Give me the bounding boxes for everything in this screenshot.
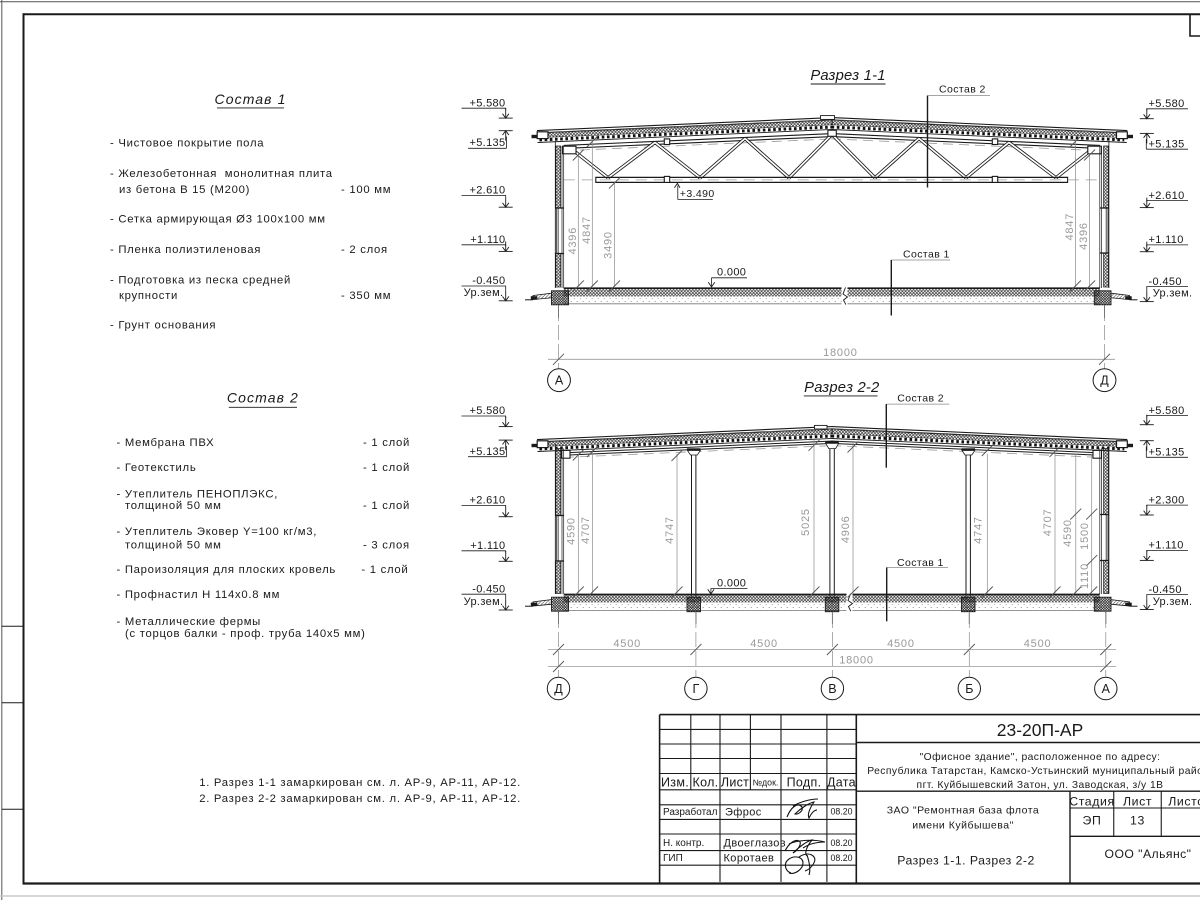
svg-text:- 350 мм: - 350 мм	[341, 290, 391, 302]
svg-text:- Пароизоляция для плоских кро: - Пароизоляция для плоских кровель	[117, 564, 337, 576]
svg-text:- Металлические фермы: - Металлические фермы	[117, 616, 262, 628]
svg-text:Дата: Дата	[827, 775, 856, 789]
svg-text:+2.610: +2.610	[469, 495, 505, 507]
svg-text:4747: 4747	[973, 516, 985, 544]
svg-text:- Пленка полиэтиленовая: - Пленка полиэтиленовая	[110, 244, 261, 256]
svg-text:- Профнастил Н 114х0.8 мм: - Профнастил Н 114х0.8 мм	[117, 589, 281, 601]
svg-text:+2.300: +2.300	[1149, 494, 1185, 506]
svg-text:ЗАО "Ремонтная база флота: ЗАО "Ремонтная база флота	[887, 805, 1040, 817]
svg-text:Кол.: Кол.	[693, 775, 719, 789]
svg-text:Состав 2: Состав 2	[897, 393, 944, 405]
svg-text:+3.490: +3.490	[680, 188, 715, 200]
svg-text:- 3 слоя: - 3 слоя	[363, 540, 410, 552]
svg-text:Ур.зем.: Ур.зем.	[1153, 596, 1193, 608]
svg-text:08.20: 08.20	[830, 853, 852, 863]
svg-text:Листов: Листов	[1168, 794, 1200, 808]
svg-text:-0.450: -0.450	[1149, 276, 1182, 288]
svg-text:Д: Д	[1100, 374, 1109, 388]
svg-text:крупности: крупности	[119, 290, 178, 302]
svg-text:- Чистовое покрытие пола: - Чистовое покрытие пола	[110, 138, 264, 150]
svg-text:3490: 3490	[603, 231, 615, 259]
svg-text:- 1 слой: - 1 слой	[363, 500, 410, 512]
svg-text:Стадия: Стадия	[1069, 794, 1115, 808]
svg-text:4707: 4707	[1042, 509, 1054, 537]
svg-text:из бетона В 15 (М200): из бетона В 15 (М200)	[119, 184, 250, 196]
svg-text:4500: 4500	[750, 638, 778, 650]
svg-text:Г: Г	[693, 682, 700, 696]
svg-text:- 1 слой: - 1 слой	[361, 564, 408, 576]
svg-text:- Утеплитель ПЕНОПЛЭКС,: - Утеплитель ПЕНОПЛЭКС,	[117, 489, 279, 501]
svg-text:Лист: Лист	[721, 775, 749, 789]
svg-text:+5.580: +5.580	[469, 405, 505, 417]
svg-text:+2.610: +2.610	[469, 185, 505, 197]
svg-text:-0.450: -0.450	[472, 275, 505, 287]
svg-text:Подп.: Подп.	[787, 775, 822, 789]
svg-text:- 2 слоя: - 2 слоя	[341, 244, 388, 256]
svg-text:+5.135: +5.135	[1149, 447, 1185, 459]
svg-text:пгт. Куйбышевский Затон, ул. З: пгт. Куйбышевский Затон, ул. Заводская, …	[917, 779, 1164, 791]
svg-text:Коротаев: Коротаев	[724, 853, 775, 865]
svg-text:18000: 18000	[839, 655, 874, 667]
svg-text:0.000: 0.000	[717, 577, 746, 589]
svg-text:Состав 1: Состав 1	[903, 248, 950, 260]
svg-text:(с торцов балки - проф. труба: (с торцов балки - проф. труба 140х5 мм)	[125, 628, 366, 640]
svg-text:толщиной 50 мм: толщиной 50 мм	[125, 540, 222, 552]
svg-text:толщиной 50 мм: толщиной 50 мм	[125, 500, 222, 512]
svg-text:Н. контр.: Н. контр.	[663, 838, 704, 849]
svg-text:4590: 4590	[1062, 519, 1074, 547]
svg-text:Разрез 2-2: Разрез 2-2	[804, 380, 880, 396]
svg-text:ЭП: ЭП	[1083, 814, 1102, 828]
svg-text:Ур.зем.: Ур.зем.	[1153, 288, 1193, 300]
svg-text:+5.580: +5.580	[1149, 98, 1185, 110]
svg-text:4707: 4707	[580, 516, 592, 544]
svg-text:Состав 1: Состав 1	[215, 91, 287, 107]
svg-text:ГИП: ГИП	[663, 853, 683, 864]
svg-text:1. Разрез 1-1 замаркирован см.: 1. Разрез 1-1 замаркирован см. л. АР-9, …	[199, 777, 521, 789]
svg-text:А: А	[1102, 682, 1111, 696]
svg-text:В: В	[828, 682, 836, 696]
svg-text:Состав 2: Состав 2	[227, 389, 299, 405]
svg-text:4396: 4396	[1078, 222, 1090, 250]
svg-text:5025: 5025	[800, 508, 812, 536]
svg-text:"Офисное здание", расположенно: "Офисное здание", расположенное по адрес…	[920, 751, 1161, 763]
svg-text:23-20П-АР: 23-20П-АР	[997, 720, 1084, 740]
svg-text:4500: 4500	[887, 638, 915, 650]
svg-text:- Подготовка из песка средней: - Подготовка из песка средней	[110, 275, 291, 287]
svg-text:- Утеплитель Эковер Y=100 кг/м: - Утеплитель Эковер Y=100 кг/м3,	[117, 526, 318, 538]
svg-text:- 1 слой: - 1 слой	[363, 437, 410, 449]
svg-text:- 1 слой: - 1 слой	[363, 462, 410, 474]
svg-text:+1.110: +1.110	[1149, 540, 1184, 552]
svg-text:4396: 4396	[567, 227, 579, 255]
svg-text:+1.110: +1.110	[1149, 234, 1184, 246]
svg-text:имени Куйбышева": имени Куйбышева"	[912, 820, 1014, 832]
svg-text:4500: 4500	[613, 638, 641, 650]
svg-text:-0.450: -0.450	[1149, 584, 1182, 596]
svg-text:18000: 18000	[823, 347, 858, 359]
svg-text:1110: 1110	[1079, 563, 1091, 589]
svg-text:Разработал: Разработал	[663, 806, 718, 818]
svg-text:+5.580: +5.580	[469, 97, 505, 109]
svg-text:Изм.: Изм.	[661, 775, 689, 789]
svg-text:Б: Б	[965, 682, 973, 696]
svg-text:08.20: 08.20	[830, 838, 852, 848]
svg-text:1500: 1500	[1079, 522, 1091, 550]
svg-text:4847: 4847	[581, 216, 593, 244]
svg-text:4500: 4500	[1024, 638, 1052, 650]
svg-text:+5.135: +5.135	[469, 446, 505, 458]
svg-text:4747: 4747	[664, 516, 676, 544]
svg-text:Республика Татарстан, Камско-У: Республика Татарстан, Камско-Устьинский …	[867, 765, 1200, 777]
svg-text:+5.135: +5.135	[469, 137, 505, 149]
svg-text:ООО "Альянс": ООО "Альянс"	[1105, 847, 1192, 861]
svg-text:Эфрос: Эфрос	[725, 806, 762, 818]
svg-text:- 100 мм: - 100 мм	[341, 184, 391, 196]
svg-text:Состав 2: Состав 2	[939, 83, 986, 95]
svg-text:+1.110: +1.110	[470, 234, 505, 246]
svg-text:- Железобетонная монолитная п: - Железобетонная монолитная плита	[110, 168, 333, 180]
svg-text:Разрез 1-1. Разрез 2-2: Разрез 1-1. Разрез 2-2	[897, 853, 1034, 867]
svg-text:- Мембрана ПВХ: - Мембрана ПВХ	[117, 437, 215, 449]
svg-text:А: А	[555, 374, 564, 388]
svg-text:Разрез 1-1: Разрез 1-1	[810, 68, 885, 84]
svg-text:- Геотекстиль: - Геотекстиль	[117, 462, 197, 474]
svg-text:Д: Д	[554, 682, 563, 696]
svg-text:Лист: Лист	[1123, 794, 1152, 808]
svg-text:0.000: 0.000	[717, 267, 746, 279]
svg-text:4590: 4590	[565, 517, 577, 545]
svg-text:+5.580: +5.580	[1149, 405, 1185, 417]
svg-text:Двоеглазов: Двоеглазов	[724, 838, 786, 850]
svg-text:+1.110: +1.110	[470, 540, 505, 552]
svg-text:- Грунт основания: - Грунт основания	[110, 320, 216, 332]
svg-text:2. Разрез 2-2 замаркирован см.: 2. Разрез 2-2 замаркирован см. л. АР-9, …	[199, 793, 521, 805]
svg-text:№док.: №док.	[753, 778, 779, 788]
svg-text:4847: 4847	[1064, 213, 1076, 241]
svg-text:Ур.зем.: Ур.зем.	[464, 596, 504, 608]
svg-text:-0.450: -0.450	[472, 583, 505, 595]
svg-text:- Сетка армирующая Ø3 100х100: - Сетка армирующая Ø3 100х100 мм	[110, 214, 326, 226]
svg-text:4906: 4906	[840, 515, 852, 543]
svg-text:08.20: 08.20	[830, 807, 852, 817]
svg-text:13: 13	[1130, 814, 1145, 828]
svg-text:+5.135: +5.135	[1149, 139, 1185, 151]
svg-text:Ур.зем.: Ур.зем.	[464, 287, 504, 299]
